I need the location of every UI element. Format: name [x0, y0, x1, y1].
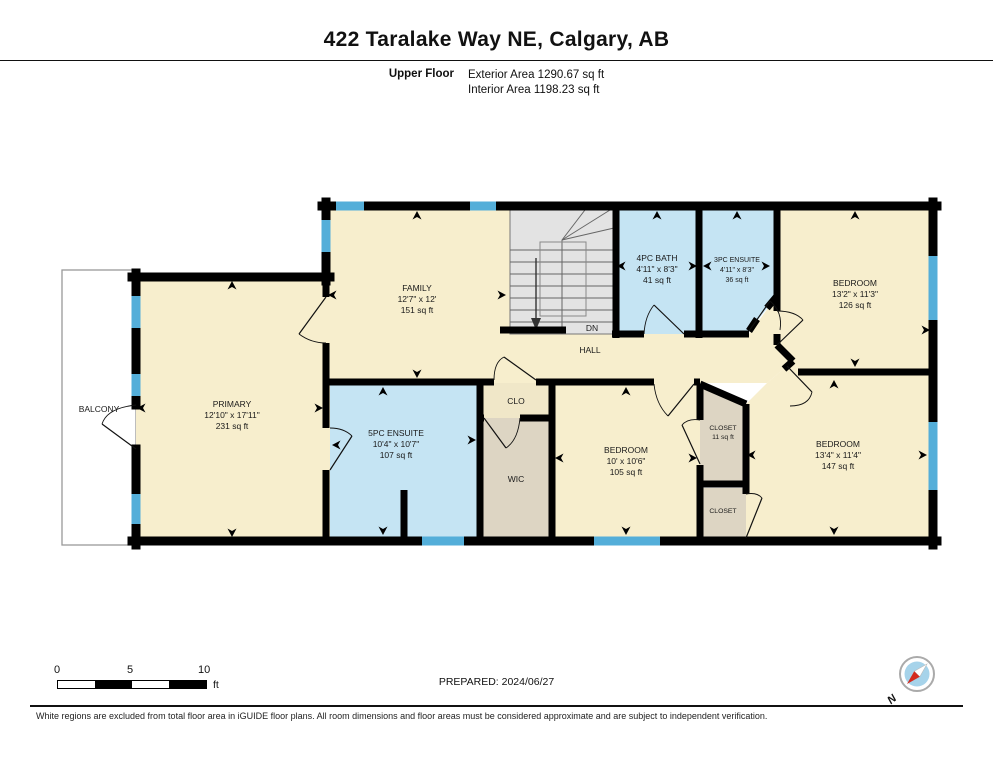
closet-upper-area-label: 11 sq ft: [712, 434, 734, 441]
ensuite5pc-dims: 10'4" x 10'7": [373, 439, 420, 449]
bedroom-se-area-label: 147 sq ft: [822, 461, 855, 471]
primary-dims: 12'10" x 17'11": [204, 410, 259, 420]
scale-tick-5: 5: [127, 664, 133, 676]
footer-divider: [30, 705, 963, 707]
ensuite5pc-name: 5PC ENSUITE: [368, 428, 424, 438]
bath4pc-area-label: 41 sq ft: [643, 275, 672, 285]
bedroom-ne-dims: 13'2" x 11'3": [832, 289, 878, 299]
bedroom-mid-area-label: 105 sq ft: [610, 467, 643, 477]
family-area-label: 151 sq ft: [401, 305, 434, 315]
hall-label: HALL: [579, 345, 601, 355]
disclaimer-text: White regions are excluded from total fl…: [36, 711, 966, 721]
stairs-dn-label: DN: [586, 323, 598, 333]
primary-area: [136, 277, 330, 541]
primary-area-label: 231 sq ft: [216, 421, 249, 431]
ensuite3pc-name: 3PC ENSUITE: [714, 257, 760, 264]
closet-upper-name: CLOSET: [709, 425, 736, 432]
scale-tick-10: 10: [198, 664, 210, 676]
primary-name: PRIMARY: [213, 399, 252, 409]
bedroom-ne-area-label: 126 sq ft: [839, 300, 872, 310]
bedroom-mid-name: BEDROOM: [604, 445, 648, 455]
family-dims: 12'7" x 12': [398, 294, 437, 304]
scale-tick-0: 0: [54, 664, 60, 676]
balcony-label: BALCONY: [79, 404, 120, 414]
floor-plan-drawing: BALCONY PRIMARY 12'10" x 17'11" 231 sq f…: [0, 0, 993, 768]
floor-plan-page: 422 Taralake Way NE, Calgary, AB Upper F…: [0, 0, 993, 768]
closet-lower-name: CLOSET: [709, 508, 736, 515]
ensuite3pc-dims: 4'11" x 8'3": [720, 267, 754, 274]
clo-label: CLO: [507, 396, 525, 406]
bedroom-ne-name: BEDROOM: [833, 278, 877, 288]
ensuite3pc-area-label: 36 sq ft: [726, 277, 749, 284]
bath4pc-dims: 4'11" x 8'3": [636, 264, 677, 274]
prepared-date: PREPARED: 2024/06/27: [0, 676, 993, 688]
bedroom-mid-dims: 10' x 10'6": [607, 456, 646, 466]
wic-label: WIC: [508, 474, 525, 484]
bath4pc-name: 4PC BATH: [637, 253, 678, 263]
ensuite5pc-area-label: 107 sq ft: [380, 450, 413, 460]
family-name: FAMILY: [402, 283, 432, 293]
bedroom-se-name: BEDROOM: [816, 439, 860, 449]
bedroom-se-dims: 13'4" x 11'4": [815, 450, 861, 460]
